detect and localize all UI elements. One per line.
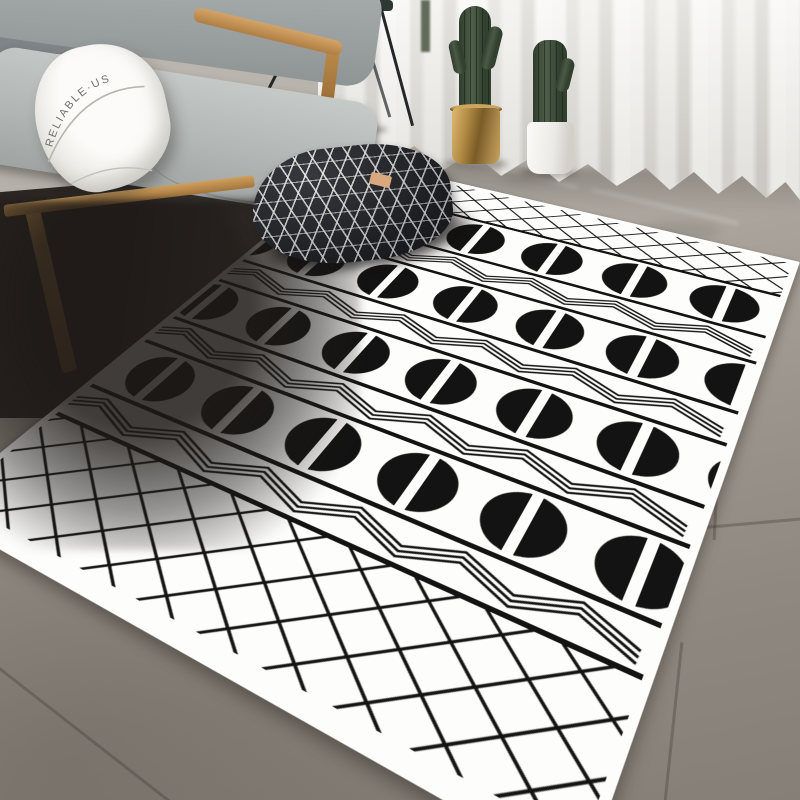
plant-stem — [421, 0, 430, 52]
living-room-scene: RELIABLE·US — [0, 0, 800, 800]
white-pot — [527, 122, 574, 174]
pillow-text: RELIABLE·US — [32, 72, 124, 150]
gold-pot — [452, 108, 500, 164]
svg-text:RELIABLE·US: RELIABLE·US — [32, 72, 124, 150]
